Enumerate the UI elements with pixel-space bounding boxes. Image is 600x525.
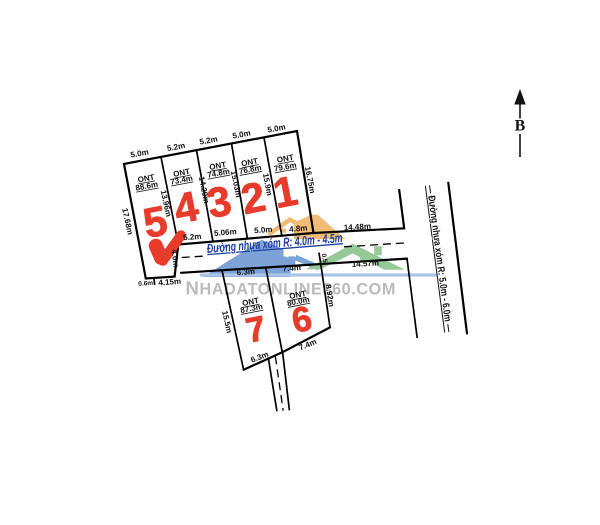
svg-text:0.6m: 0.6m bbox=[138, 280, 153, 288]
svg-text:4.8m: 4.8m bbox=[289, 223, 308, 234]
svg-text:14.57m: 14.57m bbox=[352, 258, 380, 269]
svg-text:6.3m: 6.3m bbox=[236, 267, 255, 277]
svg-text:B: B bbox=[515, 118, 526, 135]
svg-text:7.4m: 7.4m bbox=[282, 263, 301, 273]
svg-text:4.15m: 4.15m bbox=[158, 277, 181, 288]
svg-text:5.0m: 5.0m bbox=[254, 225, 273, 236]
svg-text:14.48m: 14.48m bbox=[344, 222, 372, 232]
svg-text:0.5: 0.5 bbox=[320, 253, 328, 263]
svg-text:5.2m: 5.2m bbox=[183, 232, 202, 243]
